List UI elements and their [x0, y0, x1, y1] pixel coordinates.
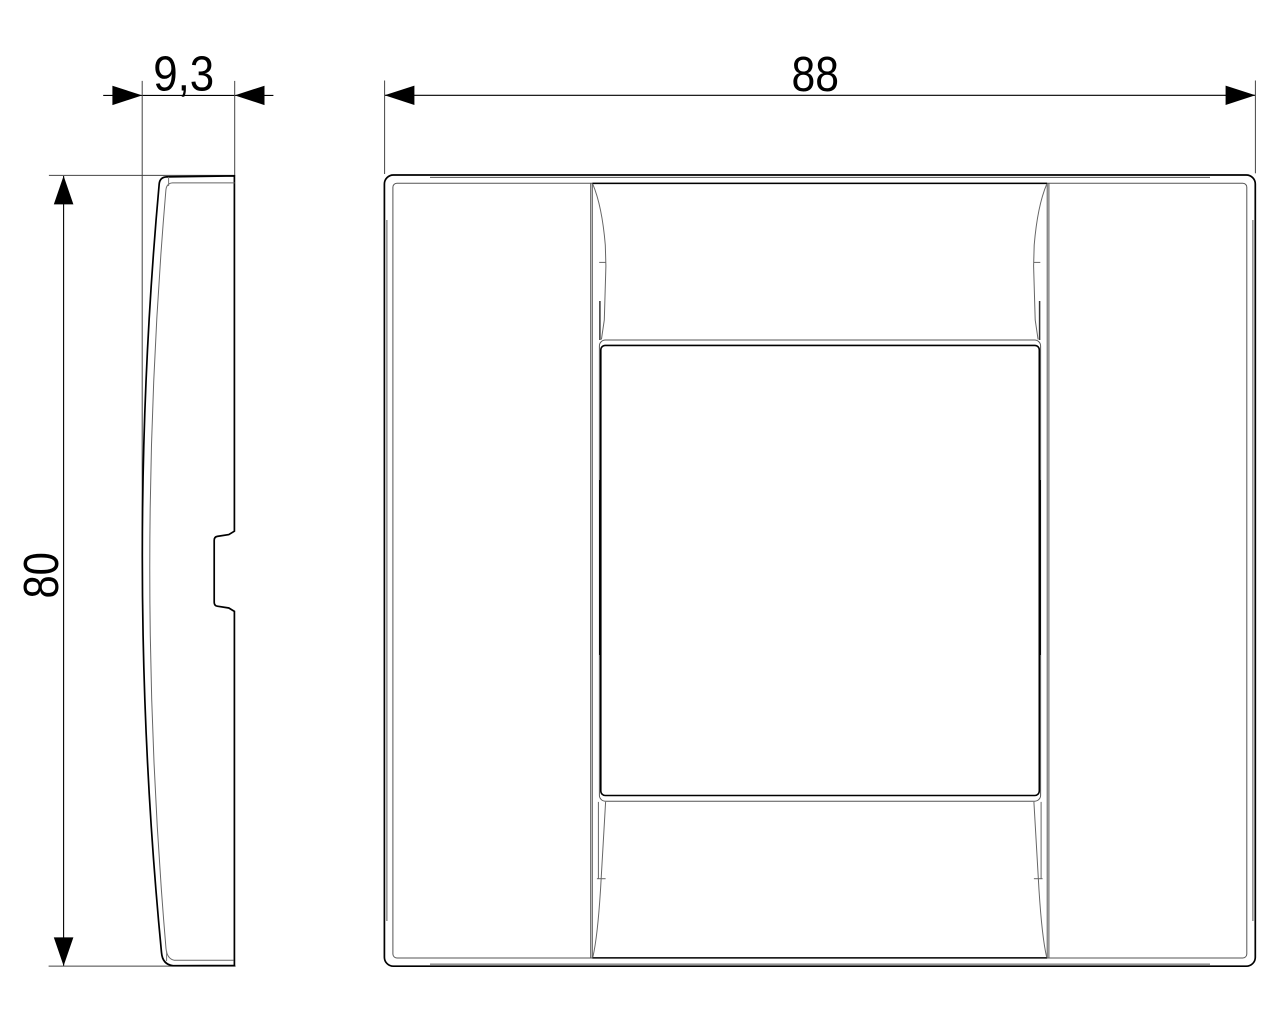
svg-text:88: 88 — [792, 48, 840, 102]
svg-text:9,3: 9,3 — [153, 48, 214, 102]
svg-text:80: 80 — [15, 552, 69, 599]
